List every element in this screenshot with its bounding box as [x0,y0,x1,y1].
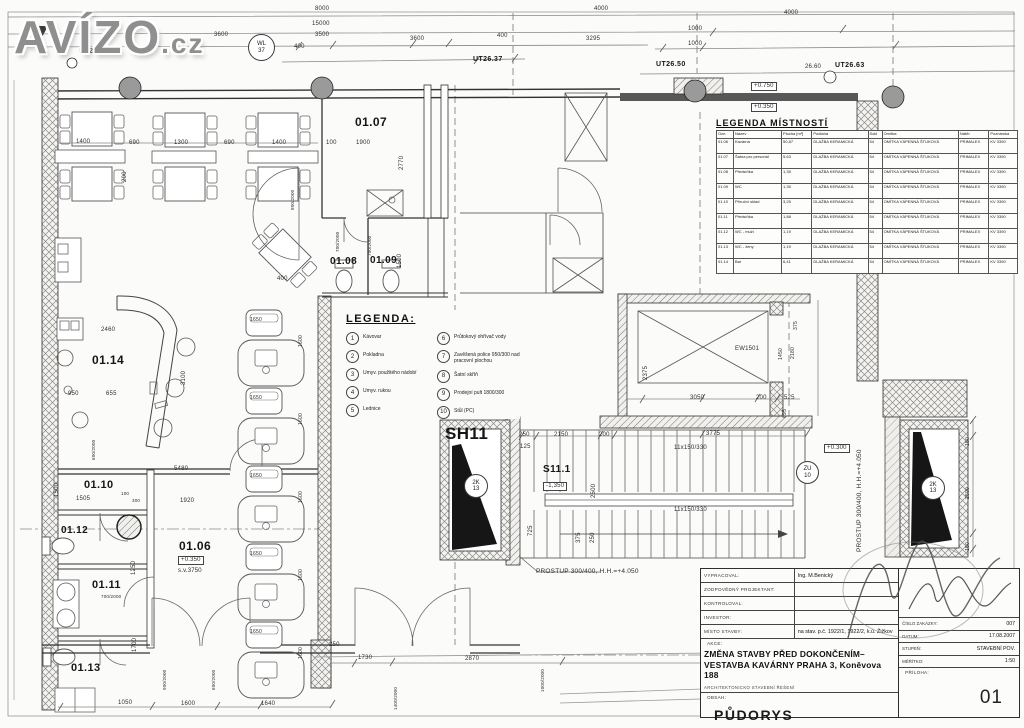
column-header: Ozn. [717,131,734,139]
legend-title: LEGENDA: [346,313,520,325]
legend-item-text: Zavěšená police 950/300 nad pracovní plo… [454,350,520,365]
field-label: STUPEŇ: [899,646,963,651]
table-cell: KV 3390 [989,228,1018,243]
table-cell: 01.12 [717,228,734,243]
priloha-label: PŘÍLOHA: [902,670,932,675]
table-cell: OMÍTKA VÁPENNÁ ŠTUKOVÁ [882,258,958,273]
field-label: DATUM: [899,634,963,639]
table-cell: PRIMALEX [959,213,989,228]
legend-item-number: 7 [437,350,450,363]
title-block-row: VYPRACOVAL:Ing. M.Benický [701,569,898,583]
column-header: Název [733,131,781,139]
floorplan-sheet: AVÍZO.cz 80001500035004003600400UT26.374… [0,0,1024,728]
table-cell: DLAŽBA KERAMICKÁ [812,168,868,183]
legend-item: 1Kávovar [346,332,429,345]
project-title: ZMĚNA STAVBY PŘED DOKONČENÍM–VESTAVBA KA… [704,649,895,681]
table-cell: 3,25 [782,198,812,213]
akce-label: AKCE: [704,641,725,646]
drawing-title: PŮDORYS [714,707,895,723]
table-cell: Kavárna [733,138,781,153]
legend-item-text: Šatní skříň [454,370,478,378]
table-cell: KV 3390 [989,153,1018,168]
table-cell: PRIMALEX [959,198,989,213]
title-block-row: DATUM:17.08.2007 [899,631,1019,644]
table-cell: 50,87 [782,138,812,153]
legend-item-number: 2 [346,350,359,363]
table-cell: KV 3390 [989,213,1018,228]
legend-item-text: Průtokový ohřívač vody [454,332,506,340]
field-label: MĚŘÍTKO: [899,659,963,664]
logo-text: AVÍZO [14,11,161,63]
table-cell: WC - ženy [733,243,781,258]
table-cell: 01.08 [717,168,734,183]
room-legend-table: LEGENDA MÍSTNOSTÍ Ozn.NázevPlocha [m²]Po… [716,118,1018,274]
table-cell: Bar [733,258,781,273]
avizo-watermark-logo: AVÍZO.cz [14,10,205,64]
table-row: 01.14Bar6,41DLAŽBA KERAMICKÁ54OMÍTKA VÁP… [717,258,1018,273]
column-header: Omítka [882,131,958,139]
field-value [794,597,898,610]
project-subtitle: ARCHITEKTONICKO STAVEBNÍ ŘEŠENÍ [704,685,895,690]
table-cell: 54 [868,198,882,213]
field-value: 17.08.2007 [963,633,1019,639]
table-row: 01.13WC - ženy1,19DLAŽBA KERAMICKÁ54OMÍT… [717,243,1018,258]
legend-item: 7Zavěšená police 950/300 nad pracovní pl… [437,350,520,365]
table-cell: KV 3390 [989,243,1018,258]
legend-item-text: Umyv. rukou [363,386,391,394]
table-cell: OMÍTKA VÁPENNÁ ŠTUKOVÁ [882,213,958,228]
legend-item-number: 5 [346,404,359,417]
table-cell: 01.10 [717,198,734,213]
table-cell: 54 [868,138,882,153]
table-cell: DLAŽBA KERAMICKÁ [812,213,868,228]
table-cell: KV 3390 [989,258,1018,273]
table-cell: WC [733,183,781,198]
table-cell: 1,19 [782,243,812,258]
table-cell: OMÍTKA VÁPENNÁ ŠTUKOVÁ [882,138,958,153]
table-cell: Předsíňka [733,168,781,183]
legend-item-text: Kávovar [363,332,381,340]
field-value: 1:50 [963,658,1019,664]
legend-box: LEGENDA: 1Kávovar2Pokladna3Umyv. použité… [346,313,520,419]
table-cell: 1,88 [782,213,812,228]
legend-item-number: 1 [346,332,359,345]
legend-item-number: 9 [437,388,450,401]
column-header: Nátěr [959,131,989,139]
obsah-label: OBSAH: [704,695,729,700]
table-cell: DLAŽBA KERAMICKÁ [812,183,868,198]
field-label: ZODPOVĚDNÝ PROJEKTANT: [701,587,794,592]
table-row: 01.12WC - muži1,19DLAŽBA KERAMICKÁ54OMÍT… [717,228,1018,243]
table-cell: DLAŽBA KERAMICKÁ [812,198,868,213]
table-cell: 01.09 [717,183,734,198]
field-value: STAVEBNÍ POV. [963,646,1019,652]
table-cell: 01.13 [717,243,734,258]
title-block-row: KONTROLOVAL: [701,597,898,611]
field-value: na stav. p.č. 1922/1, 1922/2, k.ú. Žižko… [794,625,898,638]
field-label: ČÍSLO ZAKÁZKY: [899,621,963,626]
legend-item-number: 10 [437,406,450,419]
field-value [794,611,898,624]
table-row: 01.09WC1,35DLAŽBA KERAMICKÁ54OMÍTKA VÁPE… [717,183,1018,198]
table-row: 01.07Šatna pro personál5,63DLAŽBA KERAMI… [717,153,1018,168]
table-cell: OMÍTKA VÁPENNÁ ŠTUKOVÁ [882,243,958,258]
table-cell: 1,19 [782,228,812,243]
title-block-row: ČÍSLO ZAKÁZKY:007 [899,618,1019,631]
table-cell: DLAŽBA KERAMICKÁ [812,153,868,168]
legend-item: 4Umyv. rukou [346,386,429,399]
legend-item-text: Prodejní pult 1800/300 [454,388,504,396]
legend-item: 2Pokladna [346,350,429,363]
table-cell: KV 3390 [989,183,1018,198]
table-cell: 01.11 [717,213,734,228]
title-block-row: INVESTOR: [701,611,898,625]
table-cell: OMÍTKA VÁPENNÁ ŠTUKOVÁ [882,183,958,198]
table-cell: PRIMALEX [959,258,989,273]
table-cell: PRIMALEX [959,138,989,153]
legend-item-text: Stůl (PC) [454,406,474,414]
logo-suffix: .cz [161,28,204,59]
table-cell: DLAŽBA KERAMICKÁ [812,228,868,243]
table-cell: PRIMALEX [959,168,989,183]
table-cell: KV 3390 [989,168,1018,183]
table-row: 01.11Předsíňka1,88DLAŽBA KERAMICKÁ54OMÍT… [717,213,1018,228]
room-table-grid: Ozn.NázevPlocha [m²]PodlahaSoklOmítkaNát… [716,130,1018,274]
legend-item-text: Lednice [363,404,381,412]
table-cell: DLAŽBA KERAMICKÁ [812,258,868,273]
table-cell: PRIMALEX [959,243,989,258]
legend-item: 3Umyv. použitého nádobí [346,368,429,381]
table-cell: PRIMALEX [959,183,989,198]
title-block-row: MÍSTO STAVBY:na stav. p.č. 1922/1, 1922/… [701,625,898,639]
field-label: INVESTOR: [701,615,794,620]
table-cell: OMÍTKA VÁPENNÁ ŠTUKOVÁ [882,153,958,168]
table-cell: 01.07 [717,153,734,168]
table-cell: KV 3390 [989,198,1018,213]
legend-item-text: Pokladna [363,350,384,358]
table-cell: 1,35 [782,168,812,183]
title-block-row: ZODPOVĚDNÝ PROJEKTANT: [701,583,898,597]
column-header: Sokl [868,131,882,139]
column-header: Plocha [m²] [782,131,812,139]
legend-item-number: 3 [346,368,359,381]
room-table-title: LEGENDA MÍSTNOSTÍ [716,118,1018,128]
field-value [794,583,898,596]
table-cell: KV 3390 [989,138,1018,153]
field-label: MÍSTO STAVBY: [701,629,794,634]
table-cell: DLAŽBA KERAMICKÁ [812,243,868,258]
title-block: VYPRACOVAL:Ing. M.BenickýZODPOVĚDNÝ PROJ… [700,568,1020,718]
table-cell: OMÍTKA VÁPENNÁ ŠTUKOVÁ [882,198,958,213]
title-block-row: MĚŘÍTKO:1:50 [899,656,1019,669]
table-cell: 1,35 [782,183,812,198]
table-cell: 54 [868,243,882,258]
table-cell: OMÍTKA VÁPENNÁ ŠTUKOVÁ [882,168,958,183]
legend-item: 9Prodejní pult 1800/300 [437,388,520,401]
table-cell: Šatna pro personál [733,153,781,168]
title-block-row: STUPEŇ:STAVEBNÍ POV. [899,643,1019,656]
legend-item-number: 6 [437,332,450,345]
field-label: VYPRACOVAL: [701,573,794,578]
legend-item: 10Stůl (PC) [437,406,520,419]
column-header: Poznámka [989,131,1018,139]
table-row: 01.10Příruční sklad3,25DLAŽBA KERAMICKÁ5… [717,198,1018,213]
table-cell: 54 [868,168,882,183]
legend-item: 5Lednice [346,404,429,417]
table-row: 01.06Kavárna50,87DLAŽBA KERAMICKÁ54OMÍTK… [717,138,1018,153]
table-cell: DLAŽBA KERAMICKÁ [812,138,868,153]
table-cell: 54 [868,153,882,168]
table-cell: 54 [868,228,882,243]
table-cell: 5,63 [782,153,812,168]
field-value: 007 [963,621,1019,627]
signature-scribble [899,569,1017,615]
table-row: 01.08Předsíňka1,35DLAŽBA KERAMICKÁ54OMÍT… [717,168,1018,183]
table-cell: 54 [868,258,882,273]
table-cell: PRIMALEX [959,153,989,168]
legend-item-number: 4 [346,386,359,399]
table-cell: OMÍTKA VÁPENNÁ ŠTUKOVÁ [882,228,958,243]
column-header: Podlaha [812,131,868,139]
table-cell: 01.06 [717,138,734,153]
field-value: Ing. M.Benický [794,569,898,582]
table-cell: Příruční sklad [733,198,781,213]
field-label: KONTROLOVAL: [701,601,794,606]
table-cell: 54 [868,213,882,228]
sheet-number: 01 [980,687,1003,709]
table-cell: WC - muži [733,228,781,243]
legend-item: 6Průtokový ohřívač vody [437,332,520,345]
signature-cell [899,569,1019,618]
legend-item-number: 8 [437,370,450,383]
table-cell: PRIMALEX [959,228,989,243]
legend-item-text: Umyv. použitého nádobí [363,368,417,376]
legend-item: 8Šatní skříň [437,370,520,383]
table-cell: 6,41 [782,258,812,273]
table-cell: Předsíňka [733,213,781,228]
table-cell: 54 [868,183,882,198]
table-cell: 01.14 [717,258,734,273]
